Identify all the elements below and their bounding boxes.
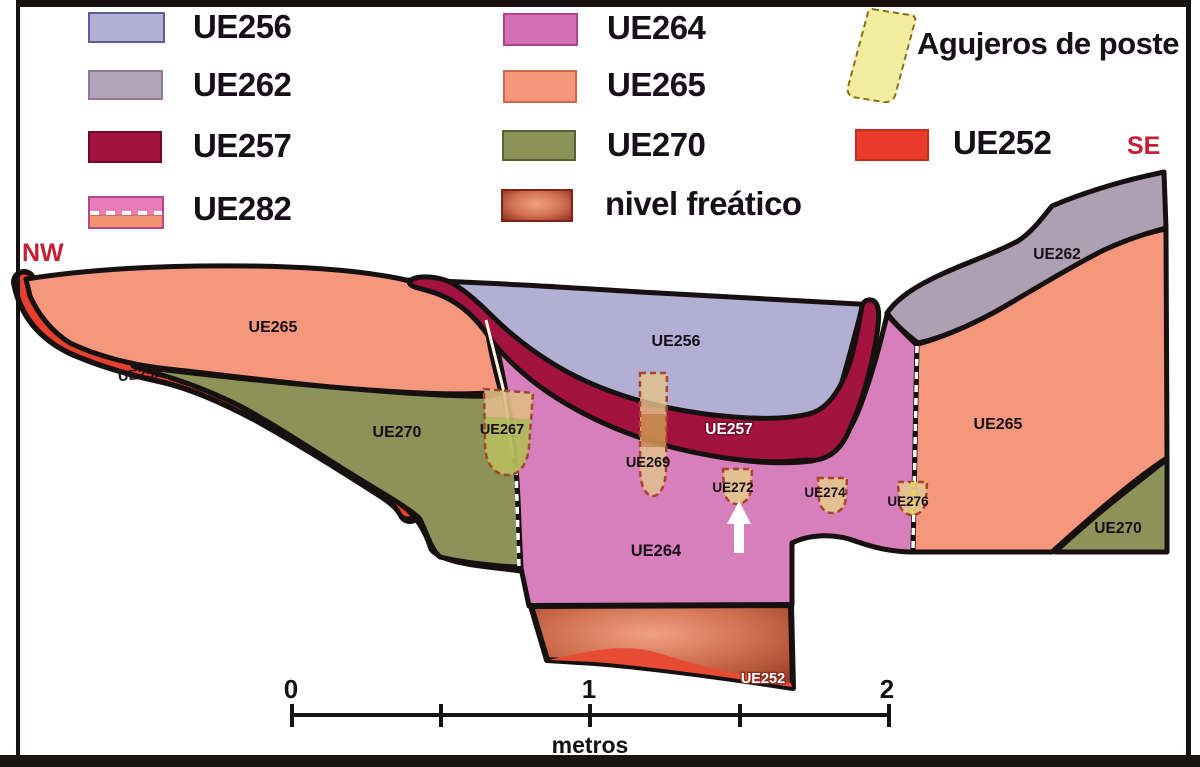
legend-label-ue265: UE265 bbox=[607, 66, 705, 104]
legend-swatch-ue270 bbox=[502, 130, 576, 161]
region-label-ue256: UE256 bbox=[652, 333, 701, 350]
compass-se-label: SE bbox=[1127, 132, 1160, 161]
frame-left bbox=[16, 0, 20, 757]
legend-swatch-nivel-freatico bbox=[501, 189, 573, 222]
region-label-ue267: UE267 bbox=[480, 422, 524, 438]
legend-label-ue256: UE256 bbox=[193, 8, 291, 46]
region-label-ue265-left: UE265 bbox=[249, 319, 298, 336]
stratigraphic-diagram: UE265 UE252 UE270 UE267 UE256 UE257 UE26… bbox=[0, 0, 1200, 767]
region-label-ue274: UE274 bbox=[804, 485, 846, 500]
region-label-ue272: UE272 bbox=[712, 480, 753, 495]
legend-swatch-ue256 bbox=[88, 12, 165, 43]
region-ue270-left bbox=[133, 366, 520, 567]
scale-bar bbox=[292, 704, 889, 727]
scale-tick-2: 2 bbox=[880, 674, 894, 704]
region-label-ue264: UE264 bbox=[631, 542, 682, 560]
region-label-ue265-right: UE265 bbox=[974, 416, 1023, 433]
posthole-ue269 bbox=[640, 373, 667, 496]
region-label-ue270-right: UE270 bbox=[1094, 520, 1141, 537]
region-label-ue257: UE257 bbox=[705, 421, 752, 438]
region-label-ue262: UE262 bbox=[1033, 246, 1080, 263]
scale-tick-0: 0 bbox=[284, 674, 298, 704]
region-label-ue276: UE276 bbox=[887, 494, 929, 509]
legend-label-ue270: UE270 bbox=[607, 126, 705, 164]
region-label-ue252-bottom: UE252 bbox=[741, 671, 785, 687]
section-drawing: UE265 UE252 UE270 UE267 UE256 UE257 UE26… bbox=[0, 0, 1200, 767]
legend-label-ue282: UE282 bbox=[193, 190, 291, 228]
legend-label-agujeros-de-poste: Agujeros de poste bbox=[917, 26, 1179, 62]
compass-nw-label: NW bbox=[22, 239, 64, 268]
legend-swatch-ue257 bbox=[88, 131, 162, 163]
legend-swatch-ue264 bbox=[503, 13, 578, 46]
region-label-ue269: UE269 bbox=[626, 455, 670, 471]
frame-right bbox=[1186, 0, 1191, 757]
frame-bottom bbox=[0, 755, 1200, 767]
legend-swatch-ue252 bbox=[855, 129, 929, 161]
legend-label-nivel-freatico: nivel freático bbox=[605, 185, 802, 223]
region-label-ue270-left: UE270 bbox=[373, 424, 422, 441]
legend-swatch-ue282-bottom bbox=[90, 215, 162, 227]
scale-tick-1: 1 bbox=[582, 674, 596, 704]
frame-top bbox=[16, 0, 1191, 7]
legend-label-ue262: UE262 bbox=[193, 66, 291, 104]
legend-label-ue257: UE257 bbox=[193, 127, 291, 165]
legend-swatch-ue265 bbox=[503, 70, 577, 103]
legend-swatch-ue262 bbox=[88, 70, 163, 100]
legend-swatch-ue282 bbox=[88, 196, 164, 229]
legend-label-ue252: UE252 bbox=[953, 124, 1051, 162]
legend-label-ue264: UE264 bbox=[607, 9, 705, 47]
